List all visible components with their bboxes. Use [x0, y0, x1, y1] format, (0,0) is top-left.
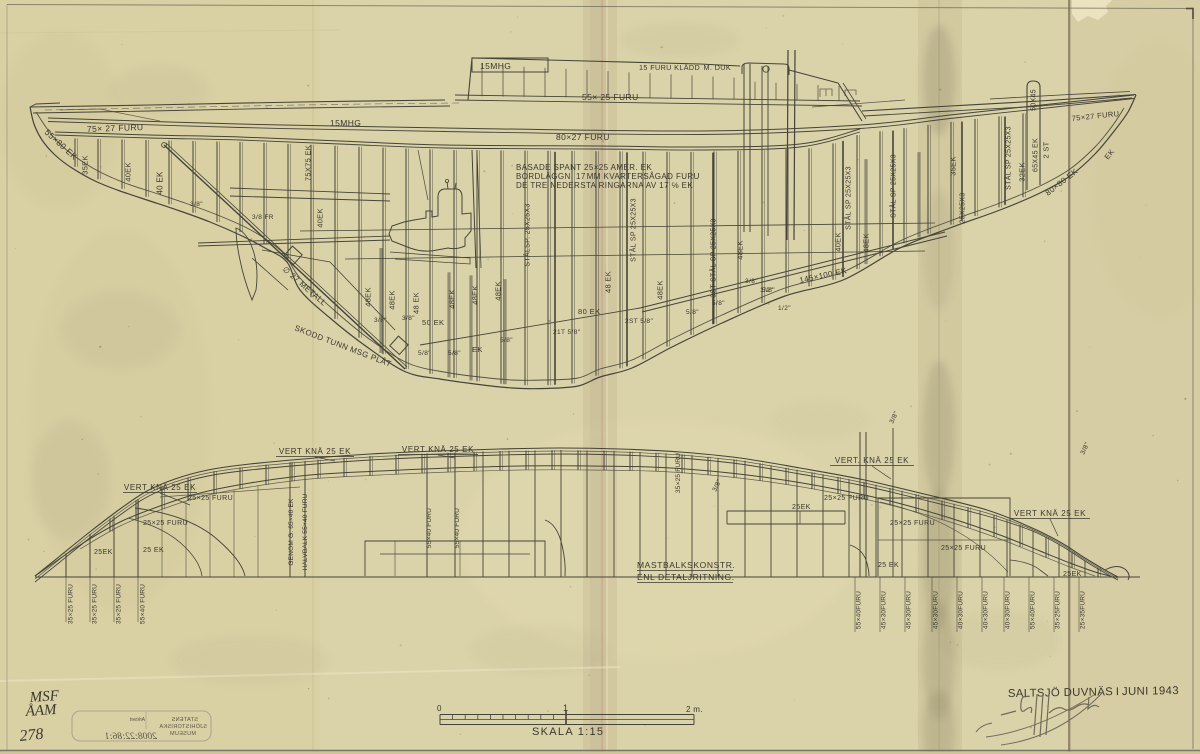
svg-text:VERT KNÄ 25 EK: VERT KNÄ 25 EK: [124, 483, 196, 492]
svg-text:40EK: 40EK: [316, 208, 325, 228]
svg-text:50 EK: 50 EK: [422, 318, 444, 327]
svg-text:50X45: 50X45: [1031, 89, 1038, 111]
svg-text:MUSEUM: MUSEUM: [170, 731, 196, 737]
svg-text:55×40FURU: 55×40FURU: [856, 591, 863, 629]
svg-text:48EK: 48EK: [736, 240, 745, 260]
svg-text:3/8": 3/8": [190, 201, 203, 208]
svg-text:2 ST: 2 ST: [1042, 141, 1051, 158]
svg-text:BORDLÄGGN. 17 MM KVARTERSÅGAD: BORDLÄGGN. 17 MM KVARTERSÅGAD FURU: [516, 172, 700, 181]
svg-text:STÅL SP 25X25X3: STÅL SP 25X25X3: [889, 154, 898, 218]
svg-text:1/2": 1/2": [778, 305, 791, 312]
svg-text:35×25 FURU: 35×25 FURU: [92, 584, 99, 624]
svg-text:45×30FURU: 45×30FURU: [906, 591, 913, 629]
svg-text:32EK: 32EK: [1018, 162, 1027, 182]
svg-text:25X25X3: 25X25X3: [960, 193, 967, 224]
svg-text:VERT KNÄ 25 EK: VERT KNÄ 25 EK: [402, 445, 474, 454]
svg-text:48EK: 48EK: [494, 281, 503, 301]
svg-text:278: 278: [19, 726, 45, 745]
svg-text:45×30FURU: 45×30FURU: [881, 591, 888, 629]
svg-text:25 EK: 25 EK: [143, 547, 164, 554]
svg-text:40EK: 40EK: [124, 162, 133, 182]
svg-text:48EK: 48EK: [448, 289, 457, 309]
svg-text:21T 5/8": 21T 5/8": [553, 329, 581, 336]
svg-text:STATENS: STATENS: [171, 717, 198, 723]
svg-text:3/8 FR: 3/8 FR: [252, 214, 274, 221]
svg-text:STÅL SP 25X25X3: STÅL SP 25X25X3: [844, 166, 853, 230]
svg-text:0: 0: [437, 704, 442, 713]
svg-text:45×30FURU: 45×30FURU: [933, 591, 940, 629]
svg-text:55×40 FURU: 55×40 FURU: [426, 508, 433, 548]
svg-text:48EK: 48EK: [471, 285, 480, 305]
svg-text:ENL DETALJRITNING.: ENL DETALJRITNING.: [637, 572, 735, 582]
svg-text:80×27 FURU: 80×27 FURU: [556, 132, 610, 142]
svg-text:ÅAM: ÅAM: [24, 702, 58, 720]
svg-text:40×30FURU: 40×30FURU: [1005, 591, 1012, 629]
svg-text:15MHG: 15MHG: [330, 118, 361, 128]
svg-text:25×25 FURU: 25×25 FURU: [143, 520, 188, 527]
svg-text:55×40 FURU: 55×40 FURU: [140, 584, 147, 624]
svg-text:25×25 FURU: 25×25 FURU: [890, 520, 935, 527]
svg-text:48 EK: 48 EK: [604, 271, 613, 293]
svg-text:35×25 FURU: 35×25 FURU: [116, 584, 123, 624]
svg-text:48EK: 48EK: [388, 290, 397, 310]
svg-text:MASTBALKSKONSTR.: MASTBALKSKONSTR.: [637, 560, 735, 570]
svg-text:40×30FURU: 40×30FURU: [983, 591, 990, 629]
svg-text:GENOM G. 65×40 EK: GENOM G. 65×40 EK: [288, 498, 295, 566]
svg-text:48 EK: 48 EK: [412, 292, 421, 314]
svg-text:35×25FURU: 35×25FURU: [1055, 591, 1062, 629]
svg-text:2 m.: 2 m.: [686, 705, 703, 714]
svg-text:1: 1: [563, 703, 568, 713]
svg-text:25×25 FURU: 25×25 FURU: [188, 495, 233, 502]
svg-text:48EK: 48EK: [364, 287, 373, 307]
svg-text:BASADE SPANT 25×25 AMER. EK: BASADE SPANT 25×25 AMER. EK: [516, 163, 652, 172]
svg-text:3/8": 3/8": [745, 278, 758, 285]
svg-text:40×30FURU: 40×30FURU: [958, 591, 965, 629]
svg-text:STÅLSP. 25X25X3: STÅLSP. 25X25X3: [523, 203, 532, 266]
svg-text:1/2": 1/2": [760, 287, 773, 294]
svg-text:55× 25 FURU: 55× 25 FURU: [582, 92, 639, 102]
svg-text:STÅL SP 25X25X3: STÅL SP 25X25X3: [1004, 126, 1013, 190]
svg-text:DE TRE NEDERSTA RINGARNA AV 17: DE TRE NEDERSTA RINGARNA AV 17 ℅ EK: [516, 181, 693, 190]
svg-text:25EK: 25EK: [94, 549, 113, 556]
svg-text:75X75 EK: 75X75 EK: [304, 145, 313, 181]
svg-text:3ST STÅL SP 25X25X3: 3ST STÅL SP 25X25X3: [709, 218, 718, 298]
svg-text:35×25 FURU: 35×25 FURU: [68, 584, 75, 624]
svg-text:15MHG: 15MHG: [480, 61, 511, 71]
svg-text:HALVBALK 55×40 FURU: HALVBALK 55×40 FURU: [302, 493, 309, 570]
svg-text:55×40 FURU: 55×40 FURU: [454, 508, 461, 548]
svg-text:40EK: 40EK: [834, 232, 843, 252]
svg-text:35EK: 35EK: [81, 155, 90, 175]
svg-text:65X45 EK: 65X45 EK: [1033, 138, 1040, 172]
svg-text:2ST 5/8": 2ST 5/8": [625, 318, 653, 325]
svg-text:5/8": 5/8": [686, 309, 699, 316]
svg-text:75× 27 FURU: 75× 27 FURU: [87, 122, 144, 134]
svg-text:SJÖHISTORISKA: SJÖHISTORISKA: [159, 723, 207, 730]
svg-text:48EK: 48EK: [862, 233, 871, 253]
svg-text:5/8": 5/8": [500, 337, 513, 344]
svg-text:40 EK: 40 EK: [156, 171, 165, 195]
svg-text:Arkivet: Arkivet: [129, 717, 145, 723]
svg-text:35×25 FURU: 35×25 FURU: [675, 453, 682, 493]
svg-text:25×25 FURU: 25×25 FURU: [824, 495, 869, 502]
svg-text:5/8": 5/8": [712, 300, 725, 307]
svg-text:3/8": 3/8": [374, 317, 387, 324]
svg-text:35EK: 35EK: [949, 156, 958, 176]
svg-text:25×25 FURU: 25×25 FURU: [941, 545, 986, 552]
svg-text:VERT KNÄ 25 EK: VERT KNÄ 25 EK: [279, 447, 351, 456]
svg-text:5/8": 5/8": [418, 350, 431, 357]
svg-text:25 EK: 25 EK: [878, 562, 899, 569]
svg-text:5/8": 5/8": [448, 350, 461, 357]
svg-text:VERT. KNÄ 25 EK: VERT. KNÄ 25 EK: [835, 456, 909, 465]
svg-text:25EK: 25EK: [1063, 571, 1082, 578]
svg-text:80 EK: 80 EK: [578, 307, 600, 316]
svg-text:EK: EK: [472, 345, 483, 354]
svg-text:SKALA 1:15: SKALA 1:15: [532, 726, 604, 738]
svg-text:48EK: 48EK: [656, 280, 665, 300]
svg-text:3/8": 3/8": [402, 315, 415, 322]
svg-text:STÅL SP 25X25X3: STÅL SP 25X25X3: [629, 198, 638, 262]
svg-text:25×35FURU: 25×35FURU: [1080, 591, 1087, 629]
svg-text:VERT KNÄ 25 EK: VERT KNÄ 25 EK: [1014, 509, 1086, 518]
svg-text:25EK: 25EK: [792, 504, 811, 511]
svg-text:2008:22:86:1: 2008:22:86:1: [105, 732, 157, 742]
svg-text:55×40FURU: 55×40FURU: [1030, 591, 1037, 629]
svg-text:15 FURU KLÄDD M. DUK: 15 FURU KLÄDD M. DUK: [639, 63, 731, 72]
